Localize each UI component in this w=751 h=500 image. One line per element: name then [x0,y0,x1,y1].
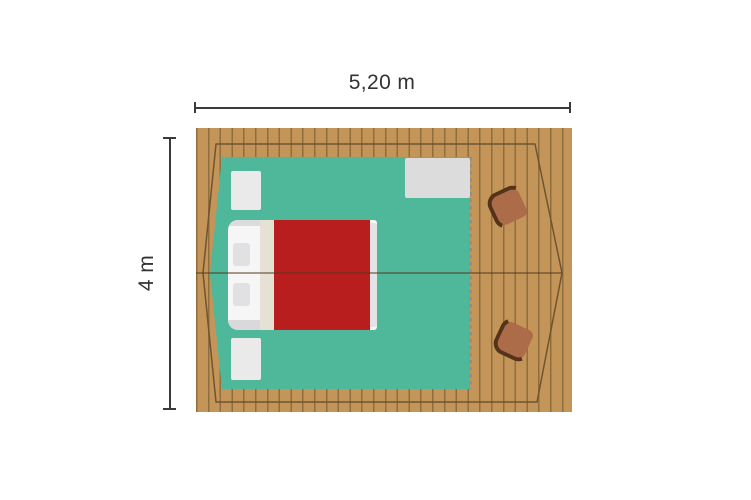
deck-chair-bottom [495,320,535,360]
bed-sheet-shade [228,320,260,330]
width-dimension-line [195,107,570,109]
tent-floorplan: 5,20 m 4 m [0,0,751,500]
bedside-mat-bottom [231,338,261,380]
double-bed [228,220,377,330]
entrance-mat [405,158,470,198]
height-dimension-label: 4 m [135,255,159,291]
tent-ridge-line [196,272,562,274]
pillow-bottom [233,283,250,306]
pillow-top [233,243,250,266]
width-dimension-tick-right [569,102,571,113]
width-dimension-tick-left [194,102,196,113]
bed-foot-edge [370,223,377,327]
width-dimension-label: 5,20 m [282,71,482,95]
deck-chair-top [489,187,529,227]
bedside-mat-top [231,171,261,210]
bed-duvet [274,220,370,330]
bed-head-edge [228,220,260,226]
height-dimension-tick-bottom [163,408,176,410]
bed-sheet-fold [260,220,274,330]
height-dimension-tick-top [163,137,176,139]
height-dimension-line [169,138,171,410]
